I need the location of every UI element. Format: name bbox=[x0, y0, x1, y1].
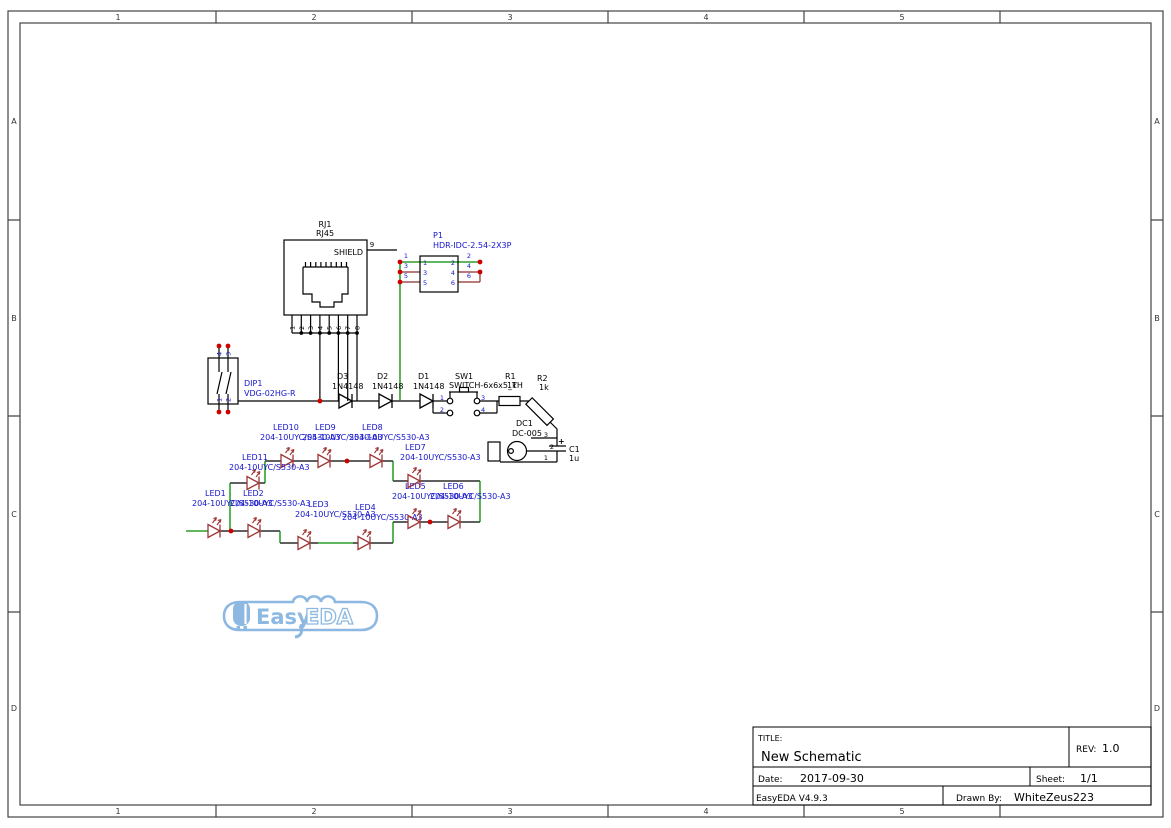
rj1-value: RJ45 bbox=[316, 229, 334, 238]
logo-text: Easy bbox=[256, 605, 311, 629]
dc1-ref: DC1 bbox=[516, 419, 533, 428]
row-label-right: D bbox=[1154, 704, 1160, 713]
led8-ref: LED8 bbox=[362, 423, 383, 432]
led11-value: 204-10UYC/S530-A3 bbox=[229, 463, 310, 472]
col-label-bottom: 2 bbox=[311, 807, 316, 816]
sw1-pin-label: 3 bbox=[481, 394, 485, 402]
led4-ref: LED4 bbox=[355, 503, 376, 512]
col-label-top: 4 bbox=[703, 13, 708, 22]
version-value: EasyEDA V4.9.3 bbox=[756, 794, 828, 804]
sw1-ref: SW1 bbox=[455, 372, 473, 381]
component-d3[interactable]: D3 1N4148 bbox=[332, 372, 363, 408]
d3-value: 1N4148 bbox=[332, 382, 363, 391]
sheet-label: Sheet: bbox=[1036, 775, 1065, 785]
row-label-left: B bbox=[11, 314, 17, 323]
rj1-pin-label: 8 bbox=[354, 326, 362, 330]
r1-ref: R1 bbox=[505, 372, 516, 381]
rj1-pin-label: 4 bbox=[316, 326, 324, 330]
led6-ref: LED6 bbox=[443, 482, 464, 491]
col-label-bottom: 5 bbox=[899, 807, 904, 816]
rj1-shield-label: SHIELD bbox=[334, 248, 363, 257]
rev-label: REV: bbox=[1076, 745, 1096, 755]
rj1-pin-label: 7 bbox=[344, 326, 352, 330]
p1-pin-label: 1 bbox=[423, 259, 427, 267]
col-label-bottom: 3 bbox=[507, 807, 512, 816]
row-label-left: D bbox=[11, 704, 17, 713]
p1-pin-label: 3 bbox=[423, 269, 427, 277]
component-d1[interactable]: D1 1N4148 bbox=[413, 372, 444, 408]
p1-pin-label: 5 bbox=[423, 279, 427, 287]
p1-pin-label: 1 bbox=[404, 252, 408, 260]
date-value: 2017-09-30 bbox=[800, 772, 864, 785]
row-label-right: B bbox=[1154, 314, 1160, 323]
rj1-pin-label: 5 bbox=[326, 326, 334, 330]
r2-ref: R2 bbox=[537, 374, 548, 383]
led11-ref: LED11 bbox=[242, 453, 268, 462]
p1-pin-label: 6 bbox=[467, 272, 471, 280]
col-label-bottom: 4 bbox=[703, 807, 708, 816]
sheet-frame: 1 2 3 4 5 1 2 3 4 5 A B C D A B C D bbox=[8, 11, 1163, 817]
d1-ref: D1 bbox=[418, 372, 429, 381]
rj1-pin-label: 3 bbox=[307, 326, 315, 330]
dc1-value: DC-005 bbox=[512, 429, 542, 438]
p1-value: HDR-IDC-2.54-2X3P bbox=[433, 241, 512, 250]
d2-value: 1N4148 bbox=[372, 382, 403, 391]
r2-value: 1k bbox=[539, 383, 549, 392]
col-label-top: 2 bbox=[311, 13, 316, 22]
dc1-pin-label: 2 bbox=[550, 443, 554, 451]
drawn-by-value: WhiteZeus223 bbox=[1014, 791, 1094, 804]
led10-ref: LED10 bbox=[273, 423, 299, 432]
schematic-canvas[interactable]: 1 2 3 4 5 1 2 3 4 5 A B C D A B C D Easy… bbox=[0, 0, 1171, 828]
rj1-pin-label: 2 bbox=[298, 326, 306, 330]
easyeda-logo: Easy EDA bbox=[224, 596, 377, 637]
d1-value: 1N4148 bbox=[413, 382, 444, 391]
led1-ref: LED1 bbox=[205, 489, 226, 498]
row-label-right: A bbox=[1154, 117, 1160, 126]
component-c1[interactable]: + C1 1u bbox=[558, 437, 580, 463]
col-label-top: 5 bbox=[899, 13, 904, 22]
col-label-bottom: 1 bbox=[115, 807, 120, 816]
rj1-ref: RJ1 bbox=[318, 220, 331, 229]
drawn-by-label: Drawn By: bbox=[956, 794, 1002, 804]
rev-value: 1.0 bbox=[1102, 742, 1120, 755]
component-led11[interactable]: LED11 204-10UYC/S530-A3 bbox=[229, 453, 310, 490]
rj1-pin-label: 6 bbox=[335, 326, 343, 330]
dc1-pin-label: 1 bbox=[544, 454, 548, 462]
d3-ref: D3 bbox=[337, 372, 348, 381]
logo-text: EDA bbox=[305, 605, 354, 629]
row-label-right: C bbox=[1154, 510, 1160, 519]
component-r2[interactable]: R2 1k bbox=[526, 374, 554, 425]
dip1-ref: DIP1 bbox=[244, 379, 262, 388]
p1-pin-label: 2 bbox=[467, 252, 471, 260]
sw1-pin-label: 4 bbox=[481, 406, 485, 414]
dip1-pin-label: 3 bbox=[225, 352, 233, 356]
date-label: Date: bbox=[758, 775, 783, 785]
led9-ref: LED9 bbox=[315, 423, 336, 432]
title-block: TITLE: New Schematic REV: 1.0 Date: 2017… bbox=[753, 727, 1151, 805]
title-label: TITLE: bbox=[757, 734, 782, 743]
title-value: New Schematic bbox=[761, 750, 862, 765]
dip1-value: VDG-02HG-R bbox=[244, 389, 296, 398]
p1-pin-label: 4 bbox=[451, 269, 455, 277]
col-label-top: 3 bbox=[507, 13, 512, 22]
led2-value: 204-10UYC/S530-A3 bbox=[230, 499, 311, 508]
component-rj1[interactable]: RJ1 RJ45 SHIELD 9 1 2 3 4 5 6 7 8 bbox=[284, 220, 374, 330]
led10-value: 204-10UYC/S530-A3 bbox=[260, 433, 341, 442]
p1-pin-label: 3 bbox=[404, 262, 408, 270]
p1-pin-label: 5 bbox=[404, 272, 408, 280]
dip1-pin-label: 4 bbox=[216, 352, 224, 356]
c1-polarity: + bbox=[558, 437, 565, 446]
sw1-pin-label: 1 bbox=[440, 394, 444, 402]
led2-ref: LED2 bbox=[243, 489, 264, 498]
p1-pin-label: 4 bbox=[467, 262, 471, 270]
component-dc1[interactable]: DC1 DC-005 3 2 1 bbox=[488, 419, 554, 462]
dc1-pin-label: 3 bbox=[544, 431, 548, 439]
led7-ref: LED7 bbox=[405, 443, 426, 452]
rj1-pin-label: 1 bbox=[289, 326, 297, 330]
row-label-left: A bbox=[11, 117, 17, 126]
p1-pin-label: 2 bbox=[451, 259, 455, 267]
rj1-pin9-label: 9 bbox=[370, 241, 374, 249]
component-p1[interactable]: P1 HDR-IDC-2.54-2X3P 1 3 5 1 3 5 2 4 6 2… bbox=[404, 231, 512, 292]
logo-robot-icon bbox=[233, 601, 250, 626]
led6-value: 204-10UYC/S530-A3 bbox=[430, 492, 511, 501]
row-label-left: C bbox=[11, 510, 17, 519]
c1-value: 1u bbox=[569, 454, 579, 463]
dip1-pin-label: 1 bbox=[216, 398, 224, 402]
dip1-pin-label: 2 bbox=[225, 398, 233, 402]
col-label-top: 1 bbox=[115, 13, 120, 22]
c1-ref: C1 bbox=[569, 445, 580, 454]
p1-pin-label: 6 bbox=[451, 279, 455, 287]
sheet-value: 1/1 bbox=[1080, 772, 1098, 785]
led7-value: 204-10UYC/S530-A3 bbox=[400, 453, 481, 462]
p1-ref: P1 bbox=[433, 231, 443, 240]
r1-value: 1k bbox=[507, 381, 517, 390]
component-d2[interactable]: D2 1N4148 bbox=[372, 372, 403, 408]
sw1-pin-label: 2 bbox=[440, 406, 444, 414]
d2-ref: D2 bbox=[377, 372, 388, 381]
led3-ref: LED3 bbox=[308, 500, 329, 509]
